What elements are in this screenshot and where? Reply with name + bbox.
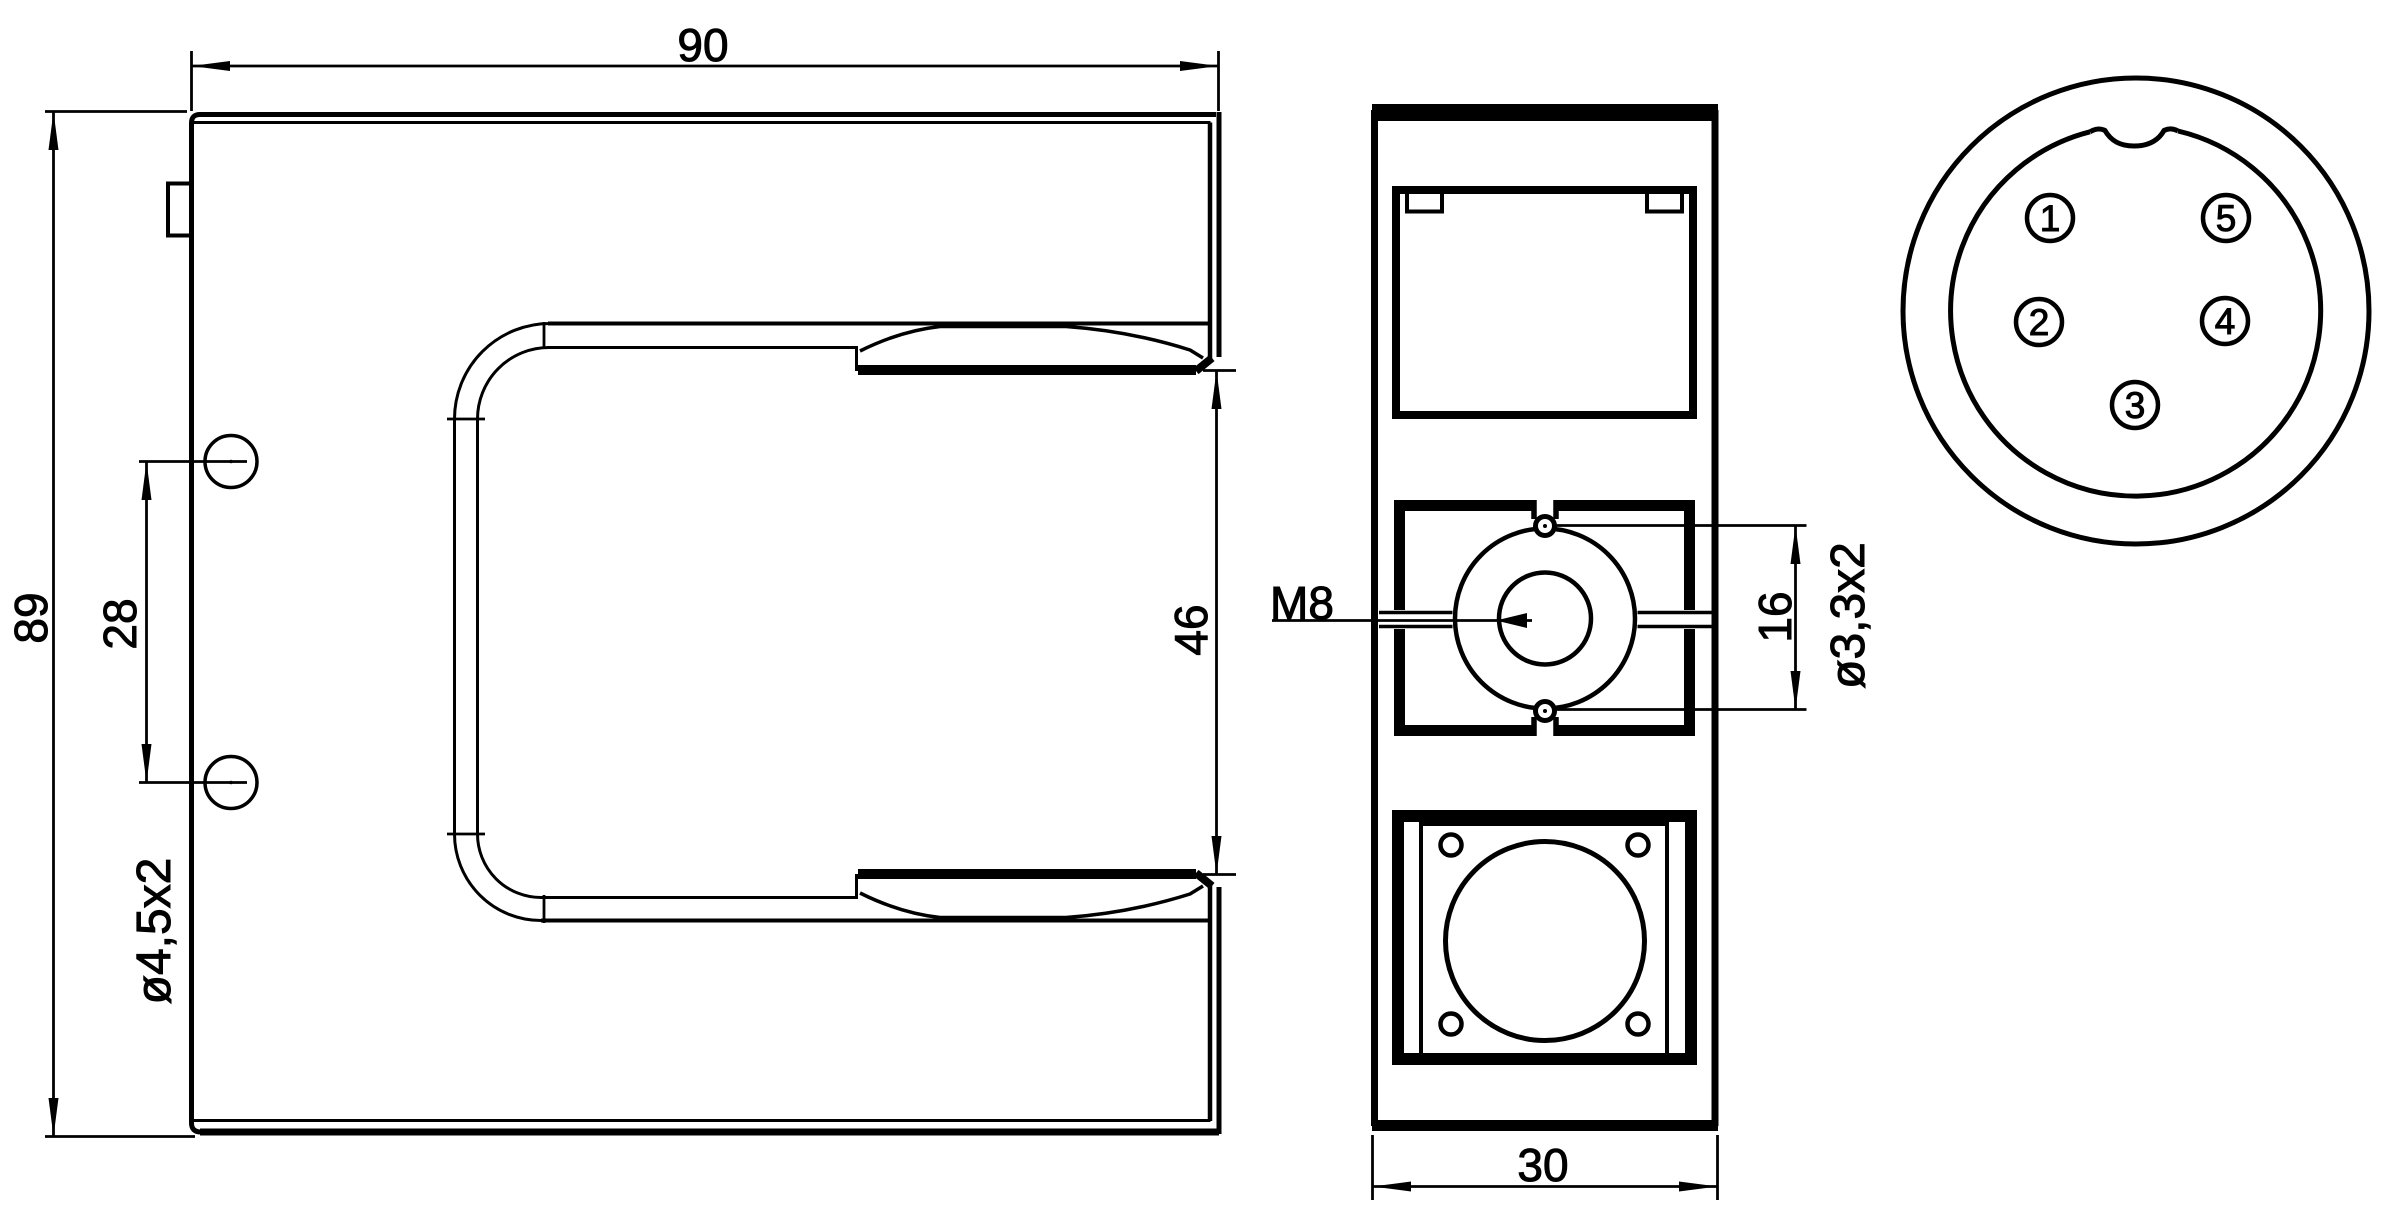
svg-text:28: 28 [94,598,146,649]
svg-text:1: 1 [2040,198,2061,239]
svg-text:46: 46 [1165,604,1217,655]
svg-text:16: 16 [1749,591,1801,642]
svg-text:4: 4 [2215,301,2236,342]
svg-text:89: 89 [5,592,57,643]
svg-text:5: 5 [2216,198,2237,239]
svg-text:2: 2 [2029,302,2050,343]
svg-text:ø4,5x2: ø4,5x2 [128,858,181,1005]
svg-text:ø3,3x2: ø3,3x2 [1822,542,1875,689]
svg-text:3: 3 [2125,385,2146,426]
svg-text:90: 90 [677,19,728,71]
svg-text:30: 30 [1517,1139,1568,1191]
